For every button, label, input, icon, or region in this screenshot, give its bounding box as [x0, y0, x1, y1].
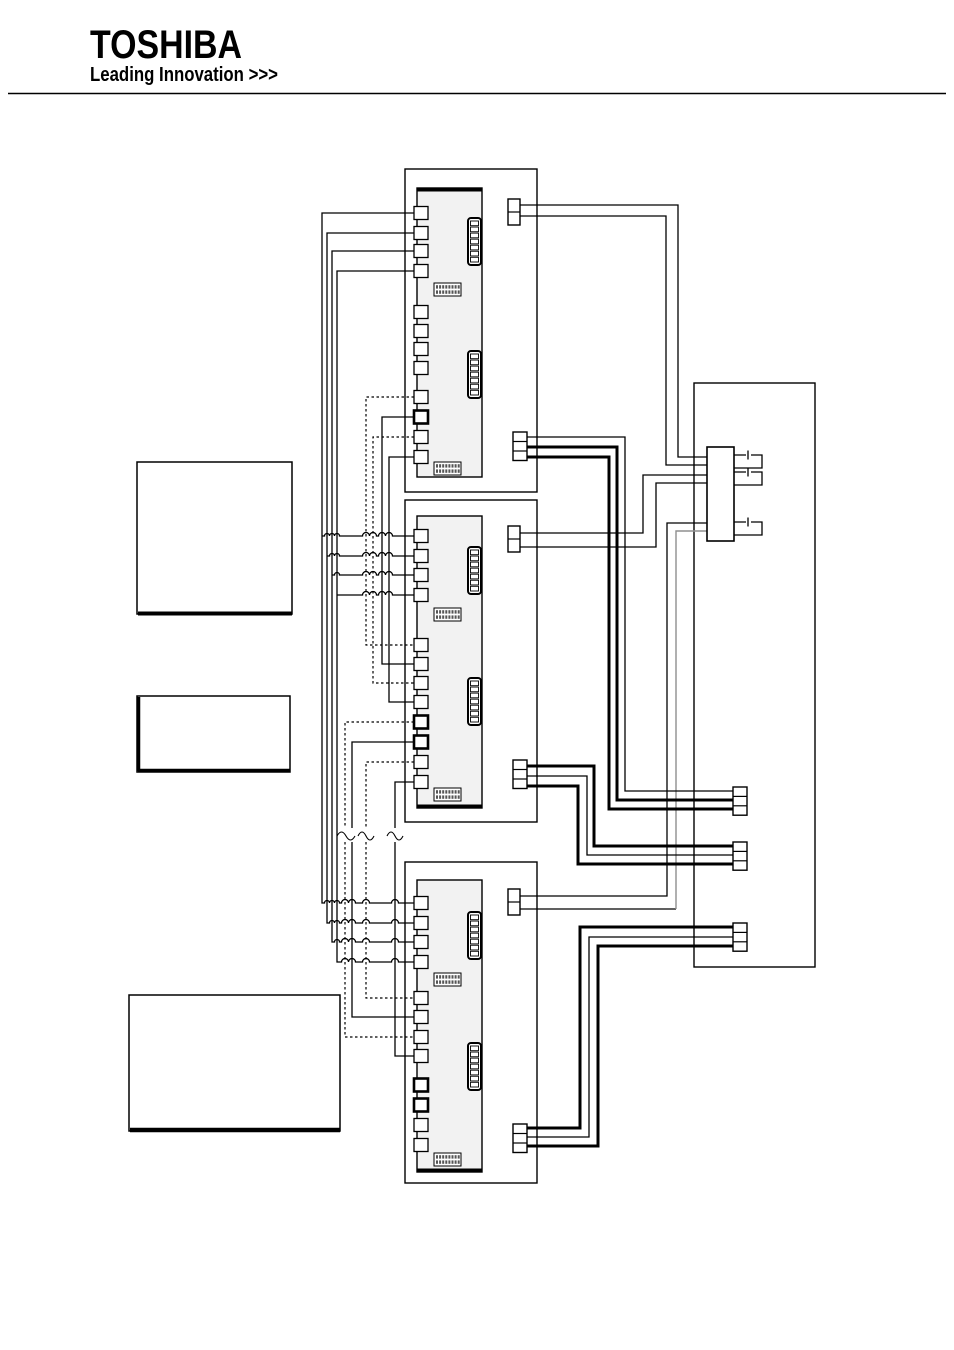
wire-break-squiggle-1: [337, 832, 355, 840]
unit2-botconn-wire-thick-1: [527, 766, 733, 846]
unit-2-pin-header-2: [468, 678, 481, 725]
unit-2-dip-switch-2: [434, 788, 461, 801]
unit-2-pin-header-1: [468, 547, 481, 594]
toshiba-tagline-text: Leading Innovation >>>: [90, 64, 278, 86]
right-box-connector-c: [733, 923, 747, 951]
bus-b-solid-2: [389, 457, 414, 702]
unit1-botconn-wire-thin: [527, 437, 733, 791]
unit2-topconn-wire-1: [520, 475, 707, 533]
terminal-block: [707, 447, 734, 541]
unit3-botconn-wire-thick-2: [527, 946, 733, 1146]
terminal-jumper-3: [734, 518, 762, 536]
unit-3-top-connector: [508, 889, 520, 915]
unit3-botconn-wire-thick-1: [527, 927, 733, 1128]
wire-break-squiggle-2: [358, 832, 374, 840]
wiring-diagram: TOSHIBALeading Innovation >>>: [0, 0, 954, 1350]
bus-b-dashed-2: [373, 437, 414, 683]
terminal-jumper-2: [734, 468, 762, 486]
label-box-1: [137, 462, 292, 614]
bus-c-dashed-1: [345, 722, 414, 1037]
unit2-botconn-wire-thick-2: [527, 786, 733, 864]
bus-a-wire-2: [327, 233, 414, 923]
unit1-botconn-wire-thick-1: [527, 447, 733, 800]
wire-break-squiggle-3: [387, 832, 403, 840]
bus-a-wire-1: [322, 213, 414, 903]
unit-1-top-connector: [508, 199, 520, 225]
svg-text:Leading Innovation >>>: Leading Innovation >>>: [90, 64, 278, 86]
unit-1-bottom-connector: [513, 432, 527, 461]
terminal-jumper-1: [734, 451, 762, 469]
svg-text:TOSHIBA: TOSHIBA: [90, 23, 242, 67]
unit1-botconn-wire-thick-2: [527, 457, 733, 809]
unit3-topconn-wire-2b-gray: [676, 531, 707, 909]
toshiba-logo-text: TOSHIBA: [90, 23, 242, 67]
unit-2-dip-switch-1: [434, 608, 461, 621]
unit-2-top-connector: [508, 526, 520, 552]
bus-a-branch-unit2-1: [322, 533, 414, 536]
unit1-topconn-wire-1: [520, 205, 707, 457]
unit1-topconn-wire-2: [520, 216, 707, 465]
manual-page: TOSHIBALeading Innovation >>>: [0, 0, 954, 1350]
unit2-botconn-wire-thin: [527, 776, 733, 855]
unit-1-dip-switch-2: [434, 462, 461, 475]
label-box-2: [137, 696, 290, 772]
bus-b-solid-1: [382, 417, 414, 664]
unit-3-bottom-connector: [513, 1124, 527, 1153]
right-box-connector-b: [733, 842, 747, 870]
right-box-connector-a: [733, 787, 747, 815]
unit-2-bottom-connector: [513, 760, 527, 789]
unit-2-terminals: [414, 530, 428, 789]
label-box-3: [129, 995, 340, 1131]
unit-1-pin-header-2: [468, 351, 481, 398]
bus-a-wire-4: [337, 271, 414, 962]
bus-a-branch-unit2-4: [337, 592, 414, 596]
unit3-topconn-wire-1: [520, 523, 707, 896]
unit-1-dip-switch-1: [434, 283, 461, 296]
unit-3-pin-header-1: [468, 912, 481, 959]
bus-a-branch-unit2-2: [327, 553, 414, 557]
unit-3-dip-switch-2: [434, 1153, 461, 1166]
unit-3-pin-header-2: [468, 1043, 481, 1090]
unit-3-dip-switch-1: [434, 973, 461, 986]
unit2-topconn-wire-2: [520, 483, 707, 547]
unit-1-pin-header-1: [468, 218, 481, 265]
